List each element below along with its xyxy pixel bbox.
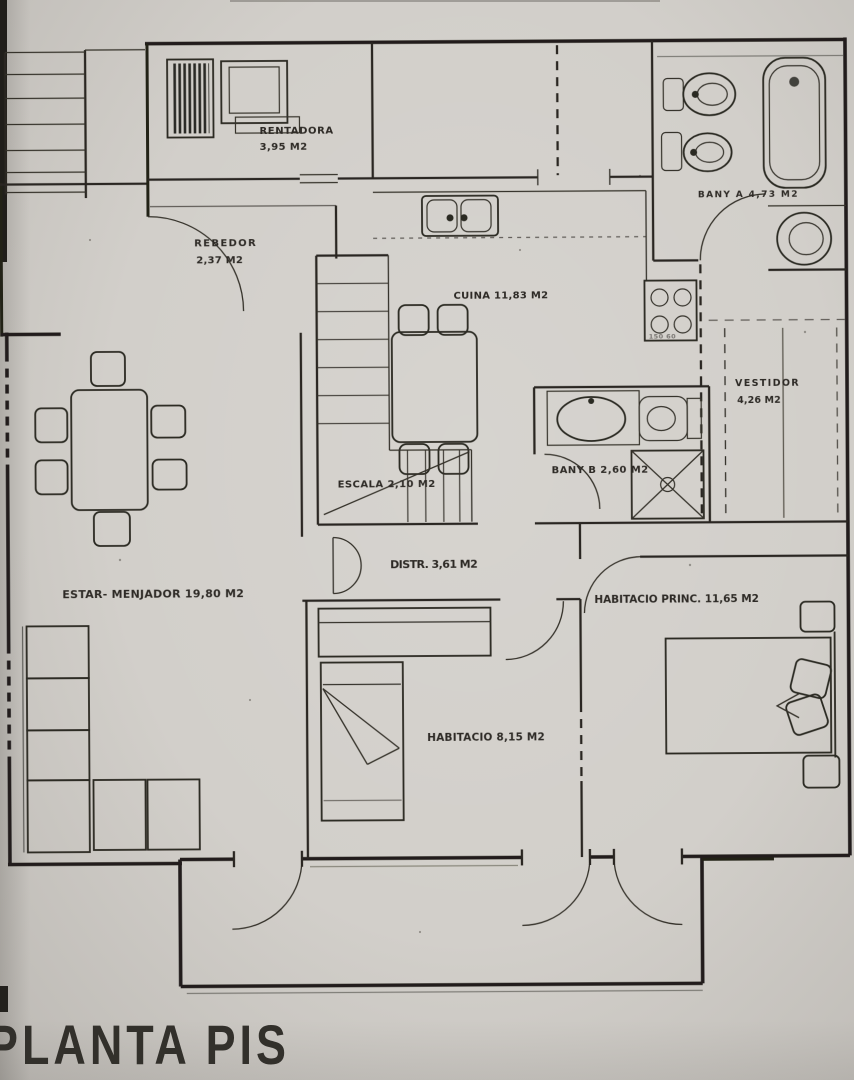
single-bed-icon bbox=[321, 662, 404, 820]
room-rebedor: REBEDOR 2,37 M2 bbox=[0, 43, 337, 335]
room-habitacio: HABITACIO 8,15 M2 bbox=[318, 607, 545, 820]
toilet-icon bbox=[639, 396, 701, 440]
room-label-bany-b: BANY B 2,60 M2 bbox=[552, 465, 649, 477]
appliance-icon bbox=[221, 61, 299, 133]
room-label-escala: ESCALA 2,10 M2 bbox=[338, 479, 436, 491]
door-arc bbox=[505, 601, 563, 659]
plan-title: PLANTA PIS bbox=[0, 1013, 290, 1076]
floor-plan-canvas: REBEDOR 2,37 M2 RENTADORA 3,95 M2 bbox=[0, 0, 854, 1080]
bidet-icon bbox=[663, 73, 735, 115]
room-estar-menjador: ESTAR- MENJADOR 19,80 M2 bbox=[21, 351, 246, 852]
interior-walls bbox=[301, 329, 850, 858]
stove-icon: 150 60 bbox=[644, 280, 696, 340]
stove-dimensions-text: 150 60 bbox=[649, 332, 676, 340]
wardrobe-icon bbox=[318, 608, 490, 657]
kitchen-table-icon bbox=[392, 305, 478, 475]
room-bany-a: BANY A 4,73 M2 bbox=[652, 39, 846, 270]
room-label-distr: DISTR. 3,61 M2 bbox=[390, 558, 478, 572]
nightstand-icon bbox=[803, 755, 839, 787]
room-area-rentadora: 3,95 M2 bbox=[260, 142, 308, 153]
room-label-rebedor: REBEDOR bbox=[194, 238, 256, 249]
room-area-rebedor: 2,37 M2 bbox=[196, 255, 243, 266]
room-label-rentadora: RENTADORA bbox=[259, 126, 333, 137]
door-arc bbox=[700, 194, 766, 260]
room-area-vestidor: 4,26 M2 bbox=[737, 395, 781, 406]
room-label-estar-menjador: ESTAR- MENJADOR 19,80 M2 bbox=[62, 587, 244, 601]
terrace bbox=[180, 848, 775, 994]
toilet-icon bbox=[662, 132, 732, 171]
room-label-habitacio-princ: HABITACIO PRINC. 11,65 M2 bbox=[594, 593, 759, 606]
bathtub-icon bbox=[763, 58, 826, 188]
room-rentadora: RENTADORA 3,95 M2 bbox=[147, 42, 373, 183]
sink-icon bbox=[547, 391, 639, 446]
scan-artifacts bbox=[0, 0, 806, 1012]
washing-machine-icon bbox=[167, 59, 213, 137]
kitchen-sink-icon bbox=[422, 196, 498, 236]
door-arc bbox=[333, 537, 361, 593]
dining-table-icon bbox=[35, 351, 187, 546]
nightstand-icon bbox=[800, 602, 834, 632]
sofa-icon bbox=[23, 625, 200, 852]
top-corridor-walls bbox=[372, 45, 653, 187]
room-label-bany-a: BANY A 4,73 M2 bbox=[698, 190, 798, 201]
double-bed-icon bbox=[666, 632, 836, 759]
exterior-stairs-icon bbox=[5, 50, 146, 199]
door-arc bbox=[544, 454, 599, 509]
room-bany-b: BANY B 2,60 M2 bbox=[534, 386, 710, 523]
scanned-floor-plan-page: REBEDOR 2,37 M2 RENTADORA 3,95 M2 bbox=[0, 0, 854, 1080]
room-vestidor: VESTIDOR 4,26 M2 bbox=[700, 263, 846, 520]
terrace-door-arcs bbox=[232, 848, 682, 929]
shower-icon bbox=[631, 450, 703, 518]
room-label-habitacio: HABITACIO 8,15 M2 bbox=[427, 731, 545, 744]
washbasin-icon bbox=[777, 213, 831, 265]
room-label-vestidor: VESTIDOR bbox=[735, 378, 799, 389]
room-label-cuina: CUINA 11,83 M2 bbox=[453, 290, 548, 302]
room-escala: ESCALA 2,10 M2 bbox=[316, 255, 472, 525]
floor-plan-drawing: REBEDOR 2,37 M2 RENTADORA 3,95 M2 bbox=[0, 37, 851, 994]
room-habitacio-princ: HABITACIO PRINC. 11,65 M2 bbox=[594, 592, 839, 788]
